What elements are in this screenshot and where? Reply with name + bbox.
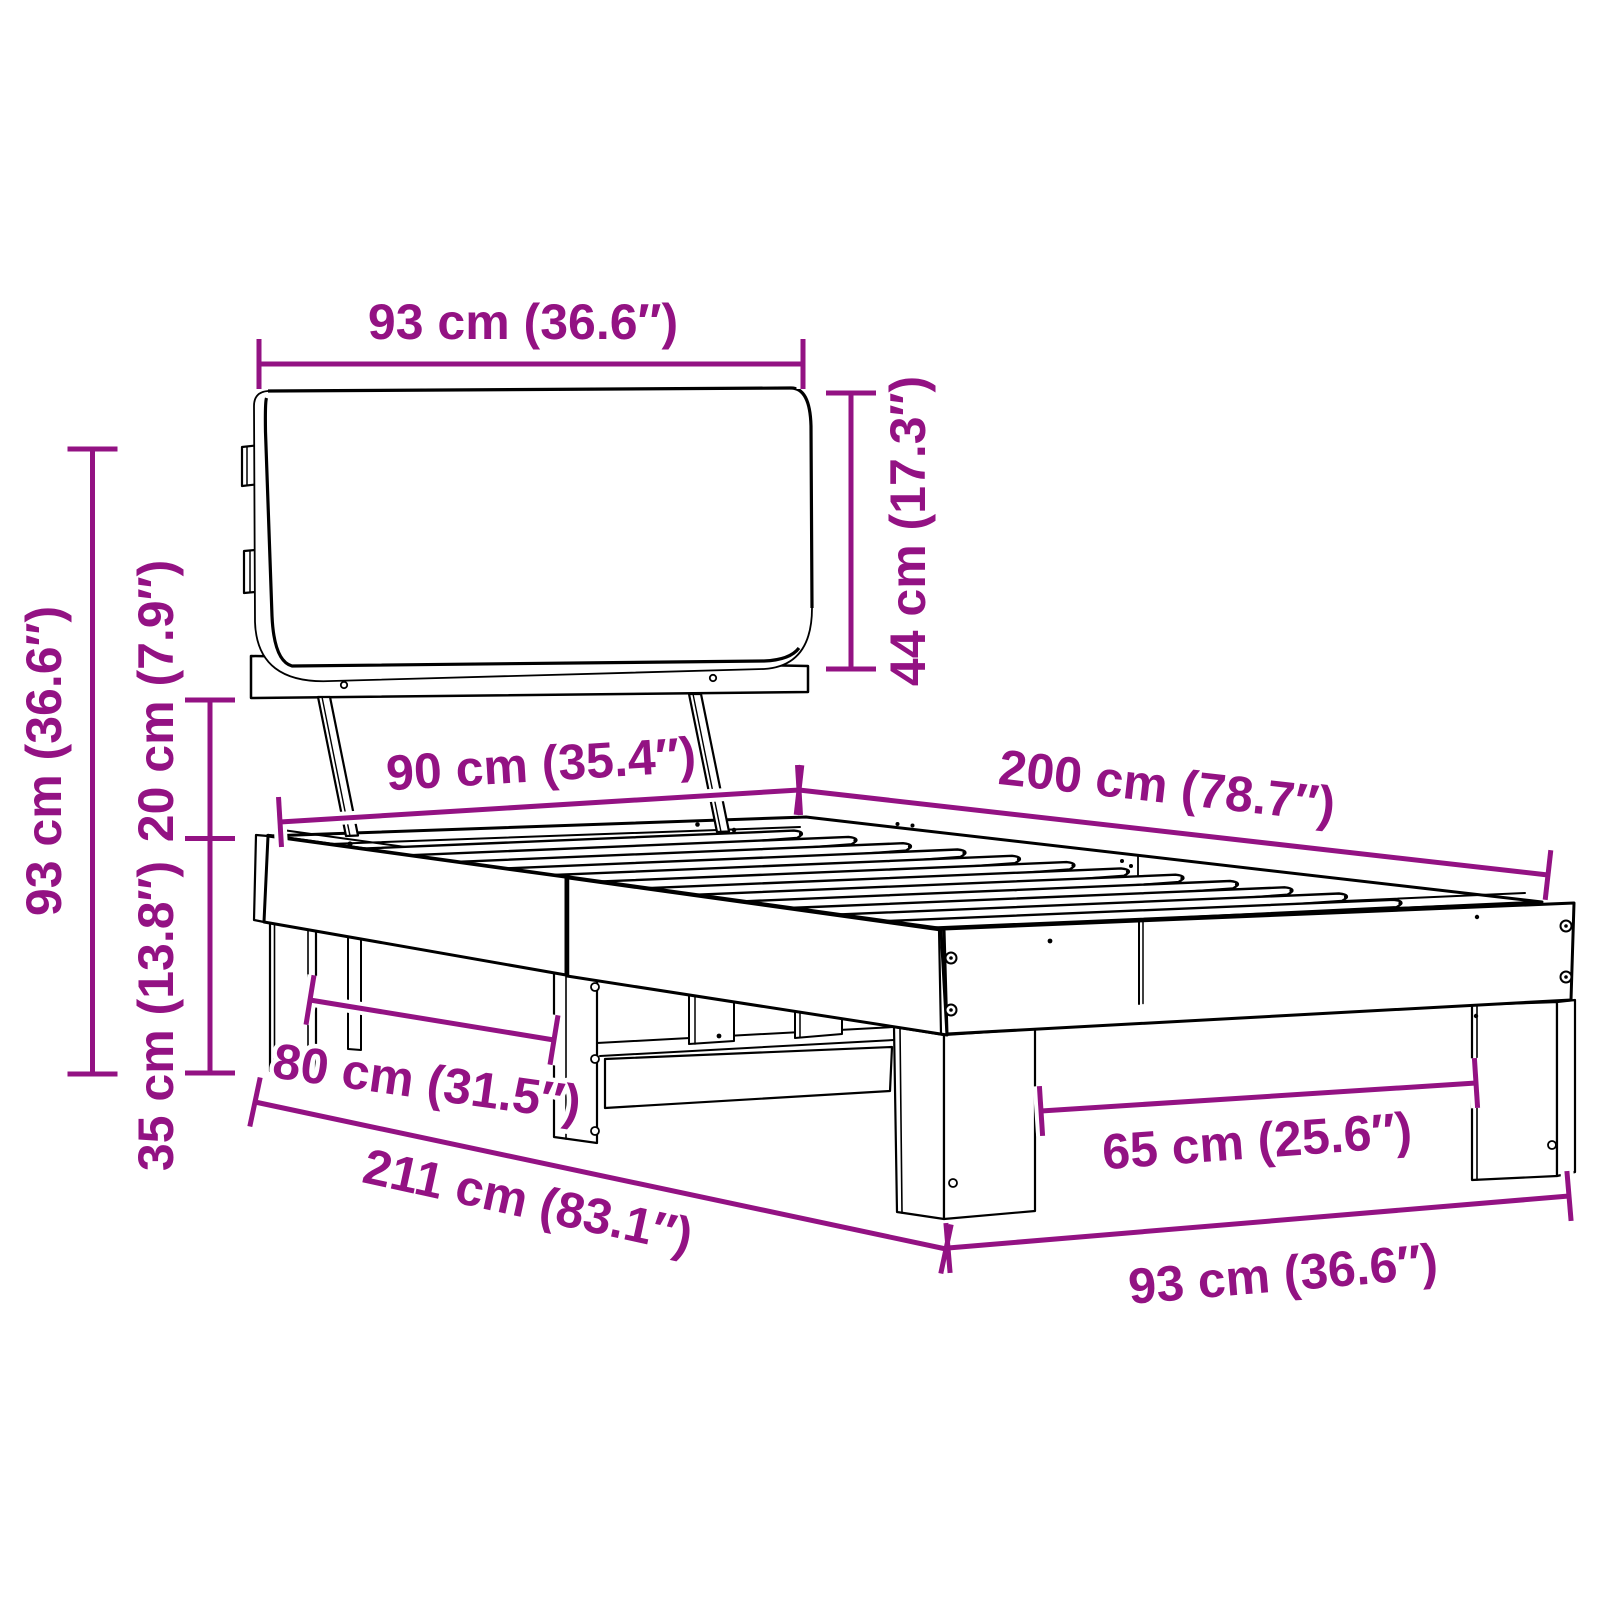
svg-text:93 cm (36.6″): 93 cm (36.6″) xyxy=(368,294,678,350)
svg-text:93 cm (36.6″): 93 cm (36.6″) xyxy=(16,606,72,916)
svg-text:44 cm (17.3″): 44 cm (17.3″) xyxy=(880,376,936,686)
svg-text:35 cm (13.8″): 35 cm (13.8″) xyxy=(128,861,184,1171)
svg-text:20 cm (7.9″): 20 cm (7.9″) xyxy=(128,560,184,842)
